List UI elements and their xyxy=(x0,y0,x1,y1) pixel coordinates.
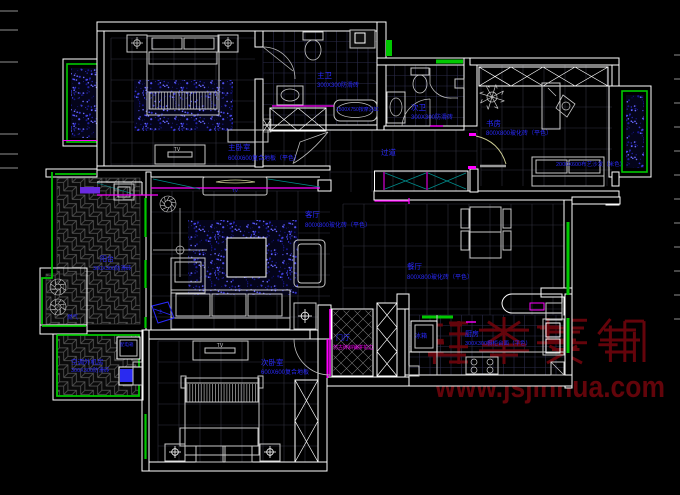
svg-text:300X300防滑砖: 300X300防滑砖 xyxy=(71,366,110,374)
svg-text:600X600复合地板（平色）: 600X600复合地板（平色） xyxy=(228,154,300,162)
svg-text:800X800玻化砖（平色）: 800X800玻化砖（平色） xyxy=(486,129,552,137)
svg-text:800X800玻化砖（平色）: 800X800玻化砖（平色） xyxy=(407,273,473,281)
svg-text:厨房: 厨房 xyxy=(465,329,479,338)
svg-text:主卫: 主卫 xyxy=(317,70,332,80)
svg-text:上: 上 xyxy=(158,308,163,314)
svg-text:配电箱: 配电箱 xyxy=(120,341,134,348)
svg-text:过道: 过道 xyxy=(381,147,396,157)
svg-text:阳台: 阳台 xyxy=(100,254,114,263)
svg-text:仿古砖斜铺拼花边: 仿古砖斜铺拼花边 xyxy=(333,344,373,351)
svg-text:冰箱: 冰箱 xyxy=(415,332,427,340)
svg-text:客厅: 客厅 xyxy=(305,209,320,219)
svg-text:800X800玻化砖（平色）: 800X800玻化砖（平色） xyxy=(305,221,371,229)
svg-text:300X300防滑砖: 300X300防滑砖 xyxy=(93,264,132,272)
svg-text:餐厅: 餐厅 xyxy=(407,262,422,271)
svg-text:次卧室: 次卧室 xyxy=(261,357,284,367)
svg-text:600X600复合地板: 600X600复合地板 xyxy=(261,368,309,376)
svg-text:TV: TV xyxy=(232,188,238,193)
svg-text:TV: TV xyxy=(174,147,181,153)
svg-text:次卫: 次卫 xyxy=(411,102,426,112)
svg-text:燃气: 燃气 xyxy=(67,313,79,321)
svg-text:主卧室: 主卧室 xyxy=(228,142,251,152)
svg-text:门厅: 门厅 xyxy=(336,333,350,342)
svg-text:书房: 书房 xyxy=(486,118,501,128)
svg-text:空调外机房: 空调外机房 xyxy=(71,357,104,366)
svg-text:300X300防滑砖: 300X300防滑砖 xyxy=(317,81,359,89)
svg-text:2000X600布艺沙发（米色）: 2000X600布艺沙发（米色） xyxy=(556,160,625,168)
svg-text:300X300橱柜台面（平色）: 300X300橱柜台面（平色） xyxy=(465,339,531,347)
svg-text:300X300防滑砖: 300X300防滑砖 xyxy=(411,113,453,121)
svg-text:TV: TV xyxy=(217,343,224,349)
svg-text:1500X750按摩浴缸: 1500X750按摩浴缸 xyxy=(336,106,379,113)
